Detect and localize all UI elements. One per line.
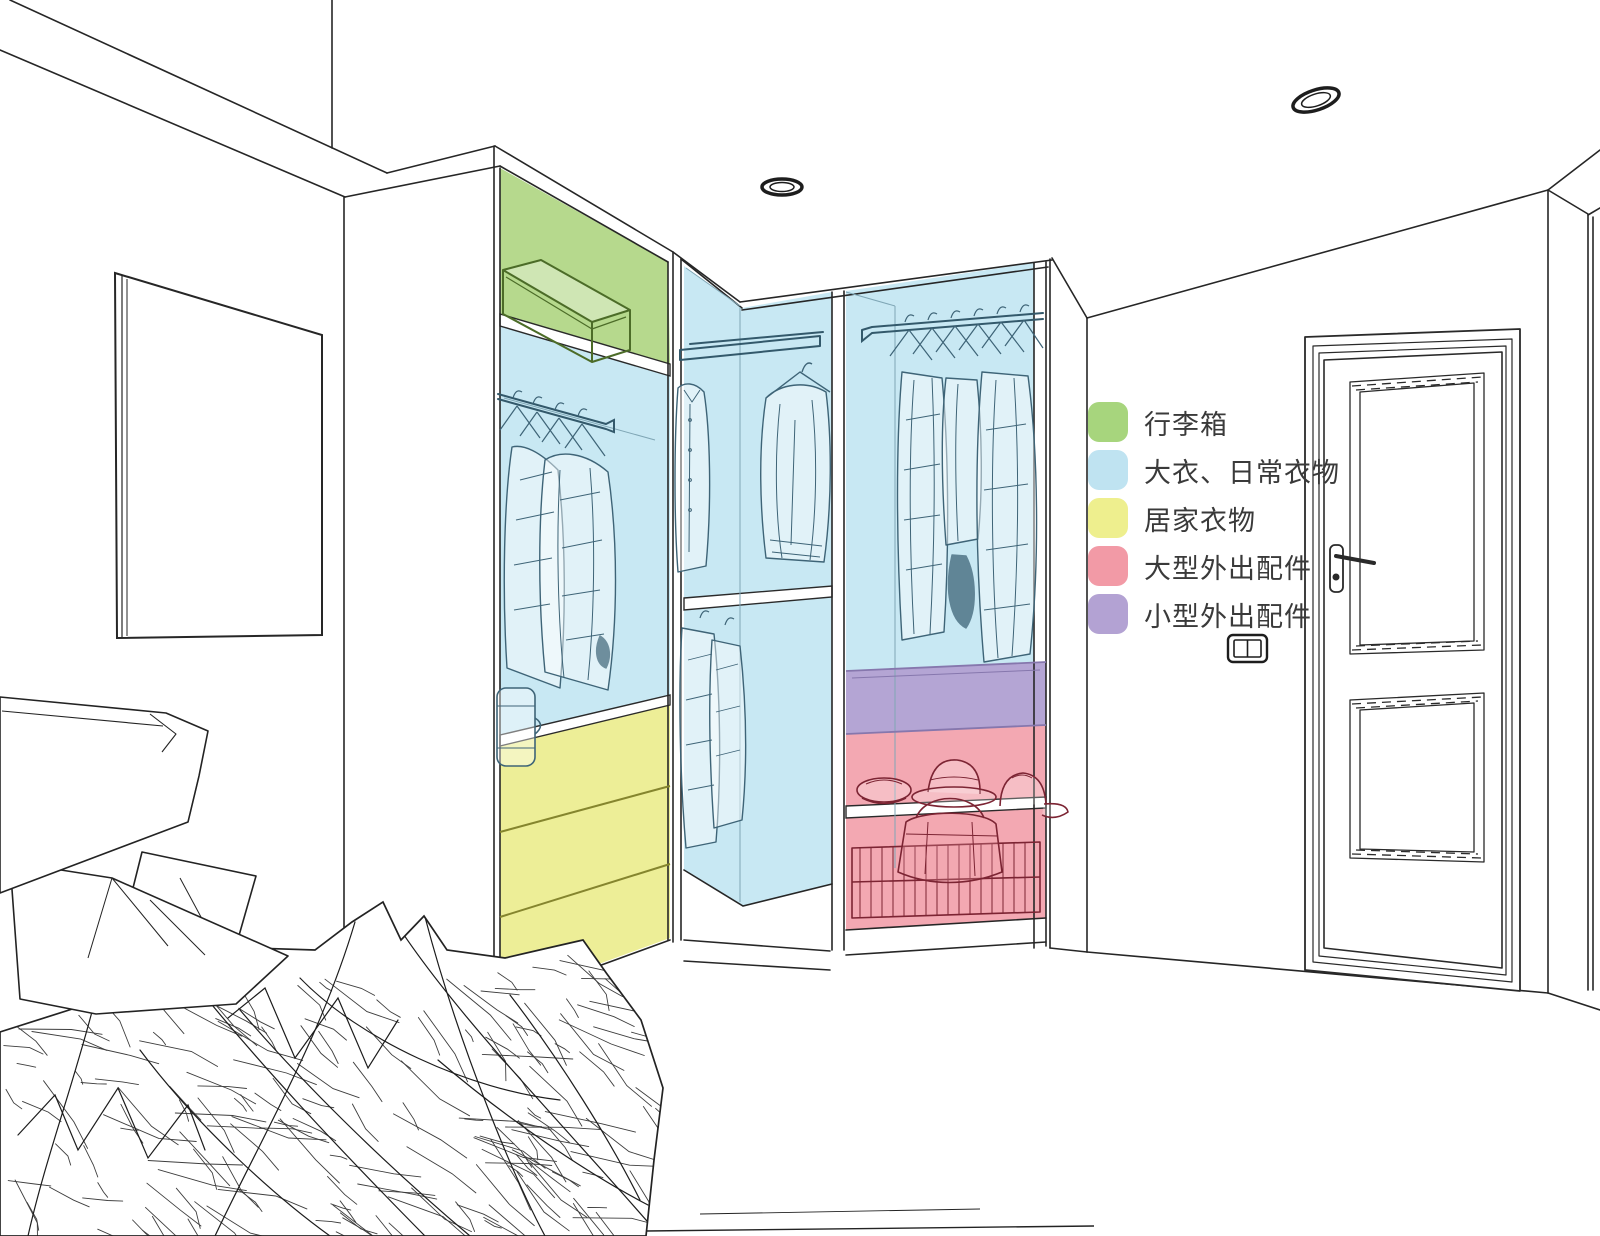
legend-item-homewear: 居家衣物: [1088, 498, 1348, 538]
legend-item-small-accessories: 小型外出配件: [1088, 594, 1348, 634]
picture-frame: [115, 273, 322, 638]
legend-swatch-small-accessories: [1088, 594, 1128, 634]
legend-swatch-luggage: [1088, 402, 1128, 442]
legend-label: 小型外出配件: [1144, 595, 1312, 634]
legend-label: 大型外出配件: [1144, 547, 1312, 586]
legend-swatch-large-accessories: [1088, 546, 1128, 586]
suitcase: [497, 688, 541, 766]
beret-hat: [857, 778, 911, 804]
bedroom-wardrobe-rendering: 行李箱大衣、日常衣物居家衣物大型外出配件小型外出配件: [0, 0, 1600, 1236]
ceiling-light-icon: [762, 179, 802, 195]
legend-label: 行李箱: [1144, 403, 1228, 442]
legend-swatch-coats-daily: [1088, 450, 1128, 490]
legend-item-luggage: 行李箱: [1088, 402, 1348, 442]
legend-label: 居家衣物: [1144, 499, 1256, 538]
legend-item-coats-daily: 大衣、日常衣物: [1088, 450, 1348, 490]
legend-swatch-homewear: [1088, 498, 1128, 538]
zone-small-accessories: [846, 662, 1046, 734]
ceiling-lights: [762, 83, 1342, 195]
legend-label: 大衣、日常衣物: [1144, 451, 1340, 490]
ceiling-light-icon: [1290, 83, 1342, 117]
room-line-art: [0, 0, 1600, 1236]
legend-item-large-accessories: 大型外出配件: [1088, 546, 1348, 586]
storage-zone-legend: 行李箱大衣、日常衣物居家衣物大型外出配件小型外出配件: [1088, 402, 1348, 642]
